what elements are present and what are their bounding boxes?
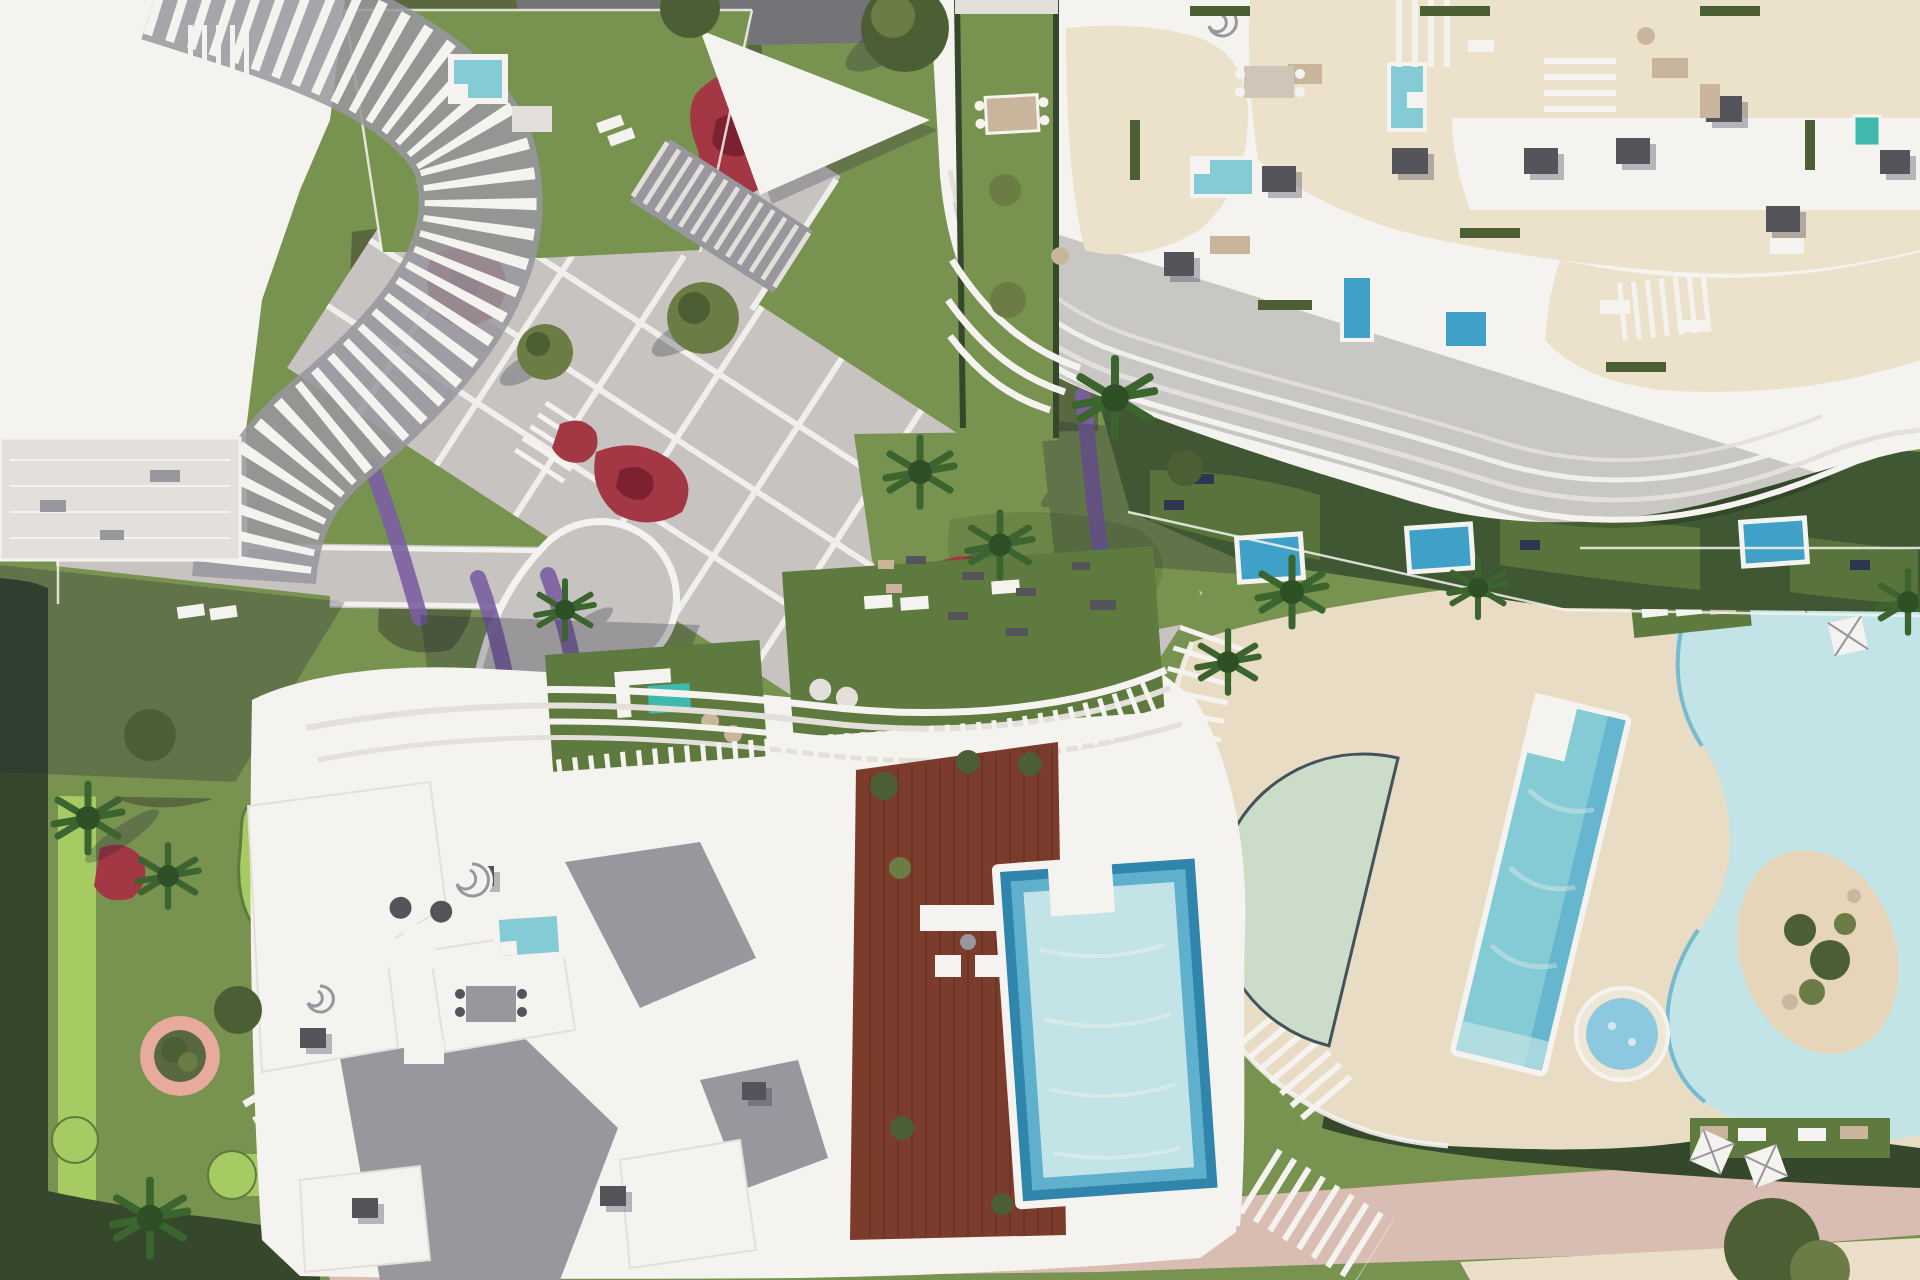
pool-step [454,84,468,98]
planter-shrub [178,1052,198,1072]
pool-platform [1047,858,1115,916]
tree [214,986,262,1034]
palm-crown [157,865,179,887]
golf-green-2 [52,1117,98,1163]
jacuzzi-foam [1608,1022,1616,1030]
chair [517,989,527,999]
pool-water [1023,882,1194,1178]
pool-step [500,941,517,956]
strip-tree [989,174,1021,206]
umbrella [1828,616,1868,656]
plunge-pool [1741,518,1808,566]
lounger [364,921,399,970]
chair [517,1007,527,1017]
palm-crown [137,1205,163,1231]
chair [1295,87,1305,97]
golf-green-3 [208,1151,256,1199]
table [985,95,1039,134]
lounger [1738,1128,1766,1141]
olive-core [678,292,710,324]
small-garden-pool [448,54,508,104]
palm-crown [908,460,932,484]
island-shrub [1799,979,1825,1005]
sun-pad [404,1040,444,1064]
deck-plant [956,750,980,774]
ne-roof-white-strip [1452,118,1920,210]
lounger [1840,1126,1868,1139]
deck-plant [991,1193,1013,1215]
deck-plant [889,857,911,879]
palm-crown [1280,580,1304,604]
palm-crown [76,806,100,830]
hanging-chair [1637,27,1655,45]
palm-crown [1468,578,1488,598]
deck-chair [935,955,961,977]
lounger [1798,1128,1826,1141]
island-rock [1847,889,1861,903]
lounger [991,579,1020,594]
deck-plant [890,1116,914,1140]
strip-tree [990,282,1026,318]
ne-green-strip [955,0,1058,445]
roof-pool [1342,276,1372,340]
ne-long-table [974,94,1050,134]
roof-pool [1444,310,1488,348]
dining-table [466,986,516,1022]
ne-strip-path [955,0,1058,14]
chair [455,989,465,999]
site-plan-render [0,0,1920,1280]
jacuzzi-water [1586,998,1658,1070]
island-rock [1782,994,1798,1010]
aerial-render-stage [0,0,1920,1280]
roof-pool-step [1407,92,1425,108]
s-plunge-pool-west [492,910,565,963]
ne-dining-table [1244,66,1294,98]
plunge-pool-water [1407,524,1474,572]
chair [1235,87,1245,97]
palm-crown [1897,591,1919,613]
island-shrub [1834,913,1856,935]
s-spiral-stair [451,859,493,901]
chair [1235,69,1245,79]
olive-core [526,332,550,356]
deck-chair [975,955,1001,977]
palm-crown [1217,651,1239,673]
palm-crown [1101,384,1129,412]
roof-pool [1854,116,1880,146]
lounger [900,596,929,611]
lounger [402,923,437,972]
tree [124,709,176,761]
lounger [864,594,893,609]
island-shrub [1784,914,1816,946]
deck-plant [1018,752,1042,776]
roof-pool-step [1192,158,1210,174]
nw-terraces [0,438,240,560]
hanging-chair [1051,247,1069,265]
jacuzzi-foam [1628,1038,1636,1046]
palm-crown [555,600,575,620]
lawn-pad [512,106,552,132]
deck-table [960,934,976,950]
plunge-pool [1407,524,1474,572]
plunge-pool-water [1741,518,1808,566]
island-shrub [1810,940,1850,980]
s-spiral-stair-2 [302,982,338,1018]
rooftop-pool [991,850,1226,1210]
chair [1295,69,1305,79]
chair [455,1007,465,1017]
garden-tree [1167,450,1203,486]
deck-plant [870,772,898,800]
palm-crown [989,534,1012,557]
